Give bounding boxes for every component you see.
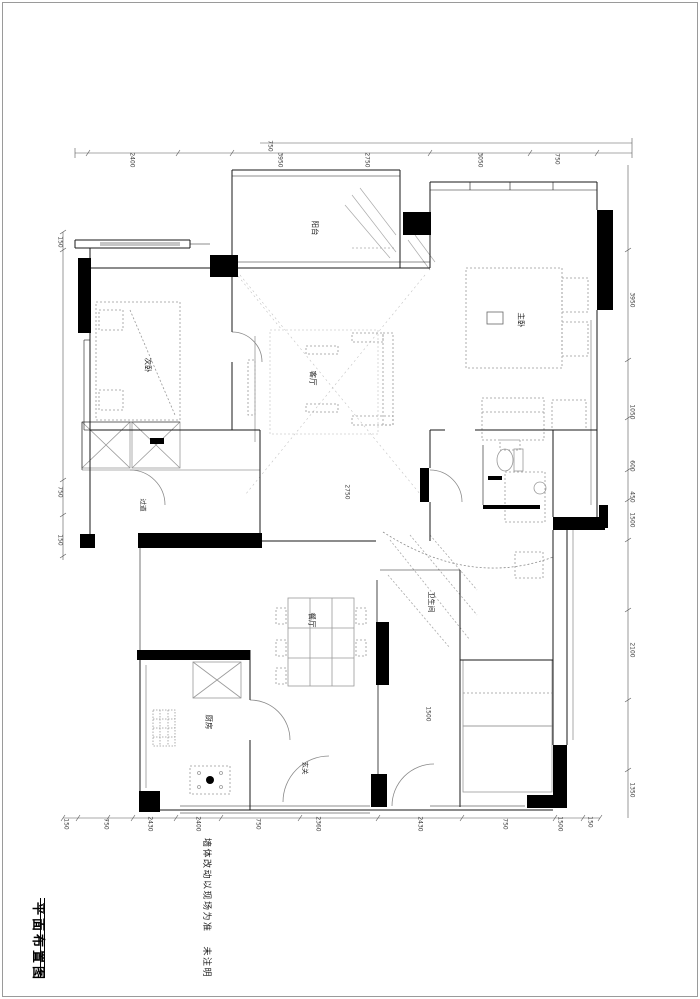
door-arc: [250, 700, 290, 740]
dimension-text: 2750: [344, 484, 351, 499]
dimension-text: 750: [502, 818, 509, 830]
furniture: [82, 188, 588, 794]
dimension-text: 1050: [629, 404, 636, 419]
note-line-1: 墙体改动以现场为准: [201, 838, 211, 933]
room-label-living-room: 客厅: [309, 371, 319, 386]
door-arc: [392, 764, 434, 806]
dimension-text: 3050: [477, 152, 484, 167]
dimension-text: 150: [57, 236, 64, 248]
dimension-text: 150: [63, 818, 70, 830]
drawing-note: 墙体改动以现场为准未注明: [201, 838, 214, 978]
dimension-text: 2430: [147, 816, 154, 831]
door-arc: [430, 470, 462, 502]
bold-walls: [78, 210, 613, 812]
room-label-bathroom: 卫生间: [427, 592, 436, 613]
dimension-text: 600: [629, 460, 636, 472]
room-label-bedroom-2: 次卧: [144, 358, 154, 373]
dimension-text: 2430: [417, 816, 424, 831]
dimension-text: 750: [57, 486, 64, 498]
room-label-kitchen: 厨房: [205, 715, 215, 730]
room-labels: 阳台次卧客厅主卧餐厅厨房卫生间过道玄关: [139, 221, 527, 776]
kitchen-sink-hatch: [153, 710, 175, 746]
dimension-text: 750: [554, 153, 561, 165]
note-line-2: 未注明: [201, 947, 211, 979]
bed-secondary: [96, 302, 180, 420]
dimension-text: 2360: [315, 816, 322, 831]
bed-master: [466, 268, 588, 430]
dimension-text: 450: [629, 491, 636, 503]
dimension-text: 1350: [629, 782, 636, 797]
wardrobe-closet: [463, 552, 552, 792]
room-label-entry: 玄关: [301, 762, 310, 776]
door-arc: [232, 332, 262, 362]
dimension-text: 2750: [364, 152, 371, 167]
dimension-text: 1500: [425, 706, 432, 721]
dimension-text: 750: [267, 140, 274, 152]
shower: [505, 472, 545, 522]
toilet: [497, 449, 523, 471]
dimension-text: 3950: [629, 292, 636, 307]
dimension-text: 750: [255, 818, 262, 830]
kitchen-stove: [190, 766, 230, 794]
room-label-dining-room: 餐厅: [308, 613, 317, 628]
dimension-text: 1500: [557, 816, 564, 831]
room-label-master-bedroom: 主卧: [517, 313, 527, 328]
dimension-text: 150: [587, 816, 594, 828]
dimension-text: 150: [57, 534, 64, 546]
corner-diagonals: [408, 235, 435, 270]
living-ceiling-lines: [238, 275, 425, 500]
wardrobe-left: [82, 422, 260, 470]
drawing-title: 平面布置图: [30, 902, 49, 982]
floor-plan: 2400395027503050750750150750243024007502…: [0, 0, 700, 999]
dimension-texts: 2400395027503050750750150750243024007502…: [57, 140, 636, 832]
tv-cabinet: [248, 336, 255, 442]
dimension-text: 750: [103, 818, 110, 830]
door-arcs: [130, 332, 553, 806]
dimension-text: 1500: [629, 512, 636, 527]
dimension-text: 2400: [129, 152, 136, 167]
dimension-text: 2100: [629, 642, 636, 657]
balcony-glazing-lines: [345, 188, 396, 258]
dimension-text: 2400: [195, 816, 202, 831]
room-label-balcony: 阳台: [311, 221, 321, 236]
room-label-hallway: 过道: [139, 499, 148, 513]
dimension-text: 3950: [277, 152, 284, 167]
dining-table: [276, 598, 366, 686]
drawing-page: 2400395027503050750750150750243024007502…: [0, 0, 700, 999]
kitchen-counter: [193, 662, 241, 698]
